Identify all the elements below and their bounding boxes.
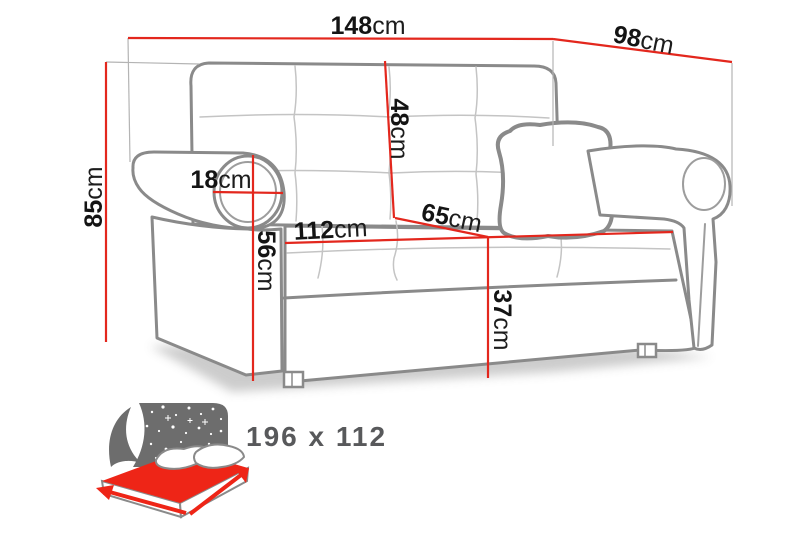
overall-width-label: 148cm (330, 12, 405, 40)
armrest-width-label: 18cm (190, 166, 251, 194)
armrest-height-label: 56cm (252, 230, 280, 291)
sofa-bed-icon: 196 x 112 (96, 403, 387, 517)
overall-depth-label: 98cm (611, 20, 676, 60)
diagram-canvas: 148cm 98cm 85cm 18cm 56cm 112cm 65cm 48c… (0, 0, 800, 533)
seat-width-label: 112cm (293, 214, 368, 246)
left-leg (284, 372, 303, 387)
sleeping-area-label: 196 x 112 (246, 421, 387, 452)
seat-height-label: 37cm (488, 289, 516, 350)
night-sky-shape (109, 407, 141, 467)
backrest-height-label: 48cm (385, 98, 413, 159)
right-leg (638, 344, 656, 357)
sofa-dimension-diagram: 148cm 98cm 85cm 18cm 56cm 112cm 65cm 48c… (0, 0, 800, 533)
overall-height-label: 85cm (80, 166, 108, 227)
